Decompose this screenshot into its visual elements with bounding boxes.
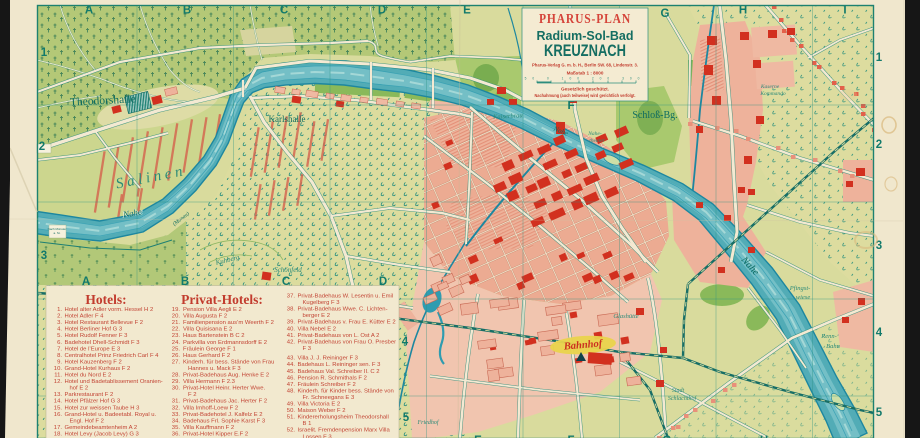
svg-text:12.: 12. — [54, 379, 63, 385]
svg-text:36.: 36. — [172, 432, 181, 438]
svg-text:34.: 34. — [172, 418, 181, 424]
svg-text:Fräulein Schreiber F 2: Fräulein Schreiber F 2 — [298, 382, 356, 388]
svg-text:Privat-Badehaus Aug. Henke E 2: Privat-Badehaus Aug. Henke E 2 — [183, 373, 269, 379]
svg-text:5: 5 — [876, 407, 883, 419]
svg-text:19.: 19. — [172, 307, 181, 313]
svg-text:39.: 39. — [287, 320, 296, 326]
svg-text:Stadt: Stadt — [672, 388, 685, 394]
svg-text:Hotel Restaurant Bellevue F 2: Hotel Restaurant Bellevue F 2 — [65, 320, 144, 326]
svg-text:Hotel Adler F 4: Hotel Adler F 4 — [65, 314, 105, 320]
svg-text:Badehaus Frl. Sophie Karst F 3: Badehaus Frl. Sophie Karst F 3 — [183, 418, 266, 424]
svg-text:23.: 23. — [172, 333, 181, 339]
svg-text:4.: 4. — [57, 327, 62, 333]
svg-text:Grand-Hotel u. Badeetabl. Roya: Grand-Hotel u. Badeetabl. Royal u. — [65, 412, 157, 418]
svg-text:24.: 24. — [172, 340, 181, 346]
svg-text:1: 1 — [41, 47, 48, 59]
svg-text:21.: 21. — [172, 320, 181, 326]
svg-text:38.: 38. — [287, 307, 296, 313]
svg-text:Privat-Hotels:: Privat-Hotels: — [181, 292, 263, 307]
svg-text:1.: 1. — [57, 307, 62, 313]
svg-text:13.: 13. — [54, 392, 63, 398]
svg-text:A: A — [85, 5, 93, 17]
svg-text:Privat-Badehotel J. Kalfelz E: Privat-Badehotel J. Kalfelz E 2 — [183, 412, 263, 418]
svg-text:Glashütte: Glashütte — [613, 313, 638, 320]
svg-text:B: B — [183, 5, 191, 17]
svg-text:50 0 100 200 300: 50 0 100 200 300 — [525, 77, 646, 81]
svg-text:22.: 22. — [172, 327, 181, 333]
svg-text:8.: 8. — [57, 353, 62, 359]
svg-text:Haus Bartenstein B C 2: Haus Bartenstein B C 2 — [183, 333, 245, 339]
svg-text:Gemeindebeamtenheim A 2: Gemeindebeamtenheim A 2 — [65, 425, 138, 431]
svg-text:Hannes u. Mack F 3: Hannes u. Mack F 3 — [188, 366, 241, 372]
svg-text:Kinderh. für Kinder bess. Stän: Kinderh. für Kinder bess. Stände von — [298, 388, 394, 394]
svg-text:Badehotel Dhell-Schmidt F 3: Badehotel Dhell-Schmidt F 3 — [65, 340, 141, 346]
svg-text:Gesetzlich geschützt.: Gesetzlich geschützt. — [561, 87, 609, 92]
svg-text:B 1: B 1 — [303, 421, 312, 427]
svg-text:32.: 32. — [172, 405, 181, 411]
svg-text:wiese: wiese — [796, 294, 811, 301]
svg-text:42.: 42. — [287, 339, 296, 345]
svg-text:Karlshalle: Karlshalle — [269, 114, 306, 124]
svg-text:Parkvilla von Erdmannsdorff E: Parkvilla von Erdmannsdorff E 2 — [183, 340, 267, 346]
svg-text:27.: 27. — [172, 359, 181, 365]
svg-text:Hotel alter Adler vorm. Hessel: Hotel alter Adler vorm. Hessel H 2 — [65, 307, 154, 313]
svg-text:48.: 48. — [287, 388, 296, 394]
svg-text:10.: 10. — [54, 366, 63, 372]
svg-text:Kinderh. für bess. Stände von: Kinderh. für bess. Stände von Frau — [183, 359, 274, 365]
svg-text:5.: 5. — [57, 333, 62, 339]
svg-text:Villa Victoria E 2: Villa Victoria E 2 — [298, 402, 341, 408]
svg-text:a. St.: a. St. — [53, 231, 60, 235]
svg-text:28.: 28. — [172, 373, 181, 379]
svg-text:15.: 15. — [54, 405, 63, 411]
svg-text:C: C — [280, 5, 288, 17]
svg-text:Schönfeld: Schönfeld — [274, 266, 302, 274]
svg-text:Israelit. Fremdenpension Marx: Israelit. Fremdenpension Marx Villa — [298, 428, 391, 434]
svg-text:14.: 14. — [54, 399, 63, 405]
svg-text:F 2: F 2 — [188, 392, 197, 398]
svg-text:3.: 3. — [57, 320, 62, 326]
svg-text:Kaserne: Kaserne — [760, 84, 780, 90]
svg-text:50.: 50. — [287, 408, 296, 414]
svg-text:Hotel du Nord E 2: Hotel du Nord E 2 — [65, 373, 112, 379]
svg-text:Familienpension aus’m Weerth F: Familienpension aus’m Weerth F 2 — [183, 320, 274, 326]
svg-text:G: G — [661, 8, 670, 20]
svg-text:49.: 49. — [287, 402, 296, 408]
svg-text:Hotel Berliner Hof G 3: Hotel Berliner Hof G 3 — [65, 327, 123, 333]
svg-text:D: D — [378, 5, 386, 17]
svg-text:6.: 6. — [57, 340, 62, 346]
svg-text:Pension R. Schmithals F 2: Pension R. Schmithals F 2 — [298, 375, 367, 381]
svg-text:Villa Hermann F 2.3: Villa Hermann F 2.3 — [183, 379, 236, 385]
svg-text:KREUZNACH: KREUZNACH — [544, 41, 626, 60]
svg-text:E: E — [463, 5, 471, 17]
svg-text:Hotel Levy (Jacob Levy) G 3: Hotel Levy (Jacob Levy) G 3 — [65, 432, 140, 438]
svg-text:37.: 37. — [287, 294, 296, 300]
svg-text:51.: 51. — [287, 415, 296, 421]
svg-text:Haus Gerhard F 2: Haus Gerhard F 2 — [183, 353, 230, 359]
svg-text:4: 4 — [402, 336, 409, 348]
svg-text:H: H — [739, 5, 747, 17]
svg-text:Privat-Badehaus von L. Ost A 2: Privat-Badehaus von L. Ost A 2 — [298, 333, 380, 339]
svg-text:Hotel Rudolf Fenner F 3: Hotel Rudolf Fenner F 3 — [65, 333, 129, 339]
svg-text:Centralhotel Prinz Friedrich C: Centralhotel Prinz Friedrich Carl F 4 — [65, 353, 160, 359]
svg-text:2: 2 — [39, 141, 45, 153]
svg-text:Badehaus L. Reininger sen. F 3: Badehaus L. Reininger sen. F 3 — [298, 362, 382, 368]
svg-text:43.: 43. — [287, 356, 296, 362]
svg-text:47.: 47. — [287, 382, 296, 388]
svg-text:Nahe-: Nahe- — [587, 131, 602, 137]
svg-text:hof E 2: hof E 2 — [70, 386, 89, 392]
svg-text:Villa Imhoff-Loew F 2: Villa Imhoff-Loew F 2 — [183, 405, 238, 411]
svg-text:Kommando: Kommando — [759, 91, 786, 97]
svg-text:Engl. Hof F 2: Engl. Hof F 2 — [70, 418, 104, 424]
svg-text:I: I — [843, 5, 846, 17]
svg-text:5: 5 — [403, 412, 410, 424]
svg-text:45.: 45. — [287, 369, 296, 375]
svg-text:berger E 2: berger E 2 — [303, 313, 331, 319]
svg-text:29.: 29. — [172, 379, 181, 385]
svg-text:Privat-Hotel Heinr. Herter Wwe: Privat-Hotel Heinr. Herter Wwe. — [183, 386, 266, 392]
svg-text:Badehaus Val. Schreiber II. C: Badehaus Val. Schreiber II. C 2 — [298, 369, 380, 375]
svg-text:44.: 44. — [287, 362, 296, 368]
svg-text:20.: 20. — [172, 314, 181, 320]
svg-text:Pension Villa Aegli E 2: Pension Villa Aegli E 2 — [183, 307, 242, 313]
svg-text:Maison Weber F 2: Maison Weber F 2 — [298, 408, 346, 414]
svg-text:Schlachthof: Schlachthof — [668, 395, 698, 402]
svg-text:41.: 41. — [287, 333, 296, 339]
svg-text:F 3: F 3 — [303, 346, 312, 352]
svg-text:Kindererholungsheim Theodorsha: Kindererholungsheim Theodorshall — [298, 415, 389, 421]
svg-text:Renn-: Renn- — [820, 333, 837, 340]
svg-text:Villa Kauffmann F 2: Villa Kauffmann F 2 — [183, 425, 234, 431]
svg-text:33.: 33. — [172, 412, 181, 418]
svg-text:25.: 25. — [172, 346, 181, 352]
svg-text:Kugelberg F 3: Kugelberg F 3 — [303, 300, 341, 306]
svg-text:F: F — [567, 100, 574, 112]
svg-text:26.: 26. — [172, 353, 181, 359]
svg-text:1: 1 — [876, 52, 883, 64]
svg-text:40.: 40. — [287, 326, 296, 332]
svg-text:Villa Augusta F 2: Villa Augusta F 2 — [183, 314, 227, 320]
svg-text:Parkrestaurant F 2: Parkrestaurant F 2 — [65, 392, 114, 398]
svg-text:Fr. Schneegans E 3: Fr. Schneegans E 3 — [303, 395, 355, 401]
svg-text:Pfingst-: Pfingst- — [789, 285, 811, 292]
svg-text:Schloß-Bg.: Schloß-Bg. — [632, 110, 677, 121]
svg-text:Privat-Badehaus Wwe. C. Lichte: Privat-Badehaus Wwe. C. Lichten- — [298, 307, 388, 313]
svg-text:18.: 18. — [54, 432, 63, 438]
svg-text:Privat-Badehaus v. Frau E. Küt: Privat-Badehaus v. Frau E. Kütter E 2 — [298, 320, 396, 326]
svg-text:31.: 31. — [172, 399, 181, 405]
svg-text:Pharus-Verlag G. m. b. H., Be: Pharus-Verlag G. m. b. H., Berlin SW. 68… — [532, 63, 638, 68]
svg-text:Hotels:: Hotels: — [85, 292, 126, 307]
svg-text:Hotel Pfälzer Hof G 3: Hotel Pfälzer Hof G 3 — [65, 399, 121, 405]
svg-text:Fräulein George F 1: Fräulein George F 1 — [183, 346, 236, 352]
svg-text:52.: 52. — [287, 428, 296, 434]
svg-text:4: 4 — [876, 327, 883, 339]
svg-text:Villa Quisisana E 2: Villa Quisisana E 2 — [183, 327, 232, 333]
svg-text:Villa Nebel E 2: Villa Nebel E 2 — [298, 326, 337, 332]
svg-text:Lossen F 3: Lossen F 3 — [303, 434, 333, 438]
svg-text:Friedhof: Friedhof — [417, 419, 440, 426]
svg-text:17.: 17. — [54, 425, 63, 431]
svg-text:Bahn: Bahn — [826, 343, 840, 350]
svg-text:Nachahmung (auch teilweise) wi: Nachahmung (auch teilweise) wird gericht… — [535, 93, 636, 98]
svg-text:30.: 30. — [172, 386, 181, 392]
svg-text:3: 3 — [41, 250, 47, 262]
svg-text:2.: 2. — [57, 314, 62, 320]
svg-text:Hotel und Badetablissement Ora: Hotel und Badetablissement Oranien- — [65, 379, 163, 385]
svg-text:16.: 16. — [54, 412, 63, 418]
svg-text:46.: 46. — [287, 375, 296, 381]
svg-text:Hotel zur weissen Taube H 3: Hotel zur weissen Taube H 3 — [65, 405, 141, 411]
svg-text:35.: 35. — [172, 425, 181, 431]
svg-text:Maßstab 1 : 8000: Maßstab 1 : 8000 — [567, 71, 604, 76]
svg-text:Privat-Badehaus Jac. Herter F: Privat-Badehaus Jac. Herter F 2 — [183, 399, 267, 405]
svg-text:Villa J. J. Reininger F 3: Villa J. J. Reininger F 3 — [298, 356, 359, 362]
svg-text:2: 2 — [876, 139, 882, 151]
svg-text:Grand-Hotel Kurhaus F 2: Grand-Hotel Kurhaus F 2 — [65, 366, 131, 372]
svg-text:11.: 11. — [54, 373, 62, 379]
svg-text:Hotel de l’Europe E 3: Hotel de l’Europe E 3 — [65, 346, 121, 352]
svg-text:Privat-Badehaus von Frau O. Pr: Privat-Badehaus von Frau O. Presber — [298, 339, 397, 345]
svg-text:Hotel Kauzenberg F 2: Hotel Kauzenberg F 2 — [65, 359, 122, 365]
svg-text:theater: theater — [589, 138, 605, 144]
svg-text:PHARUS-PLAN: PHARUS-PLAN — [539, 11, 631, 26]
svg-text:Privat-Badehaus W. Lesentin u.: Privat-Badehaus W. Lesentin u. Emil — [298, 294, 394, 300]
svg-text:Privat-Hotel Kipper E.F 2: Privat-Hotel Kipper E.F 2 — [183, 432, 248, 438]
svg-text:7.: 7. — [57, 346, 62, 352]
svg-text:9.: 9. — [57, 359, 62, 365]
